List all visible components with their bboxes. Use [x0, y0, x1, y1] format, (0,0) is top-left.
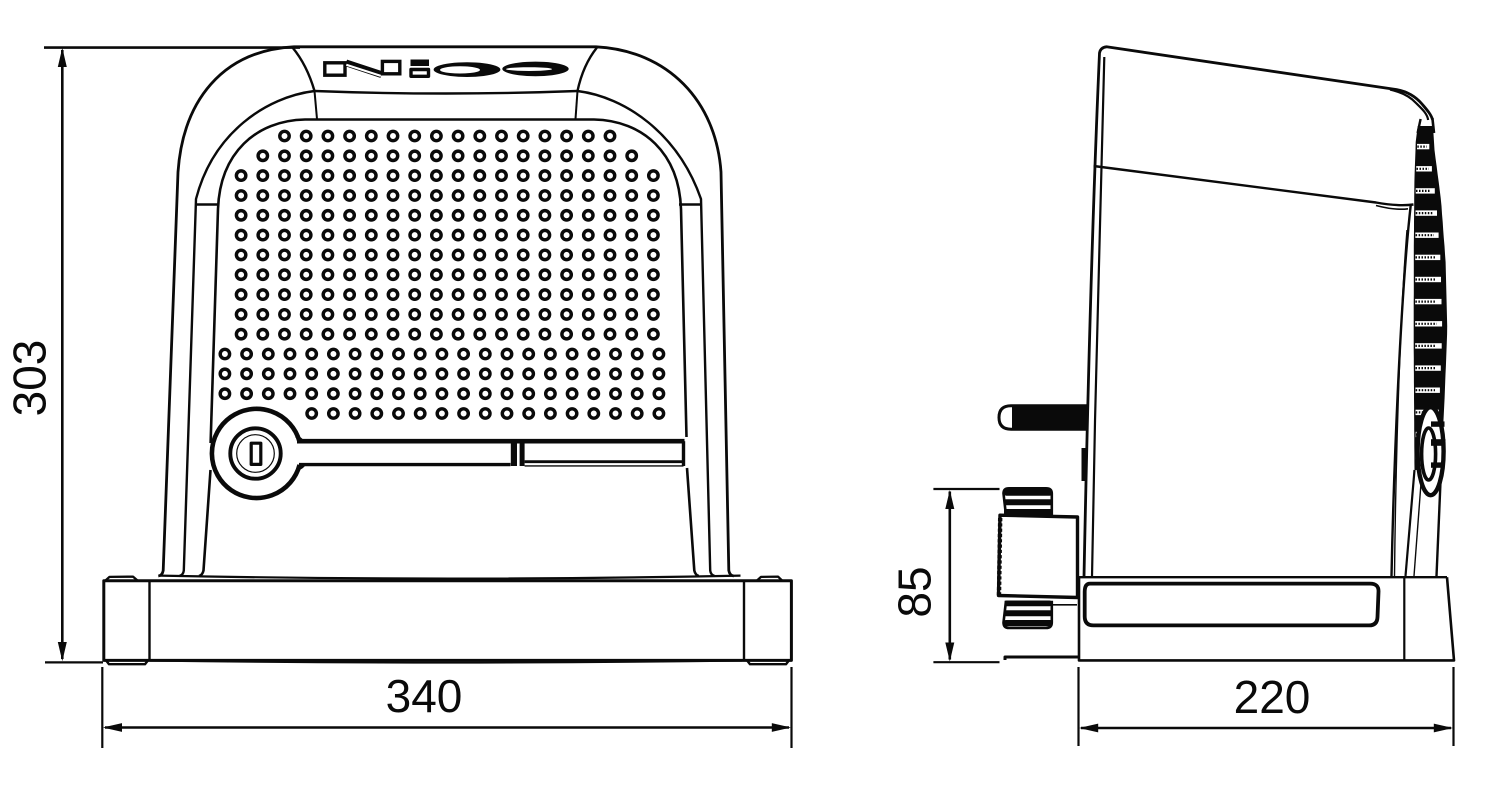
svg-text:303: 303 [4, 340, 56, 417]
svg-text:220: 220 [1234, 671, 1311, 723]
svg-text:85: 85 [889, 566, 941, 617]
svg-text:340: 340 [386, 670, 463, 722]
